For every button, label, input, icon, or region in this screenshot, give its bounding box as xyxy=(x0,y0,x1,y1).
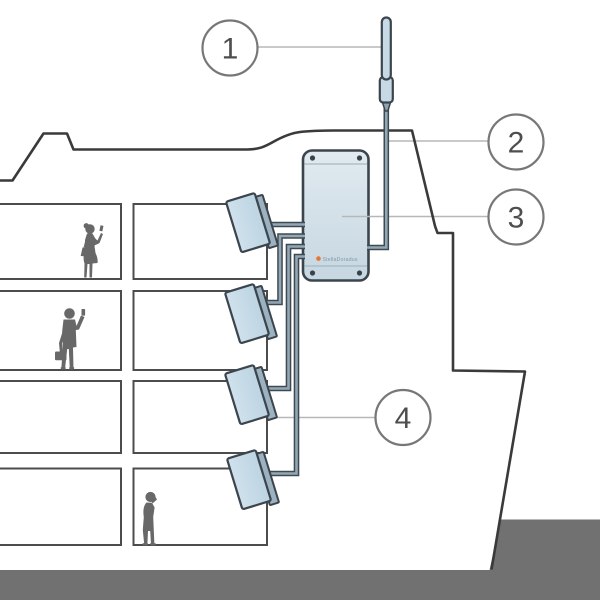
brand-logo-icon xyxy=(316,256,321,261)
outdoor-antenna xyxy=(380,18,393,112)
cabin-deck4-left xyxy=(0,469,121,546)
diagram-canvas: StellaDoradus xyxy=(0,0,600,600)
callout-4-number: 4 xyxy=(395,402,412,435)
callout-2-number: 2 xyxy=(508,127,525,160)
callout-2: 2 xyxy=(489,115,544,170)
callout-1: 1 xyxy=(203,21,258,76)
cable-panel4-outer xyxy=(265,257,305,474)
brand-logo: StellaDoradus xyxy=(316,256,358,262)
brand-logo-text: StellaDoradus xyxy=(323,257,358,263)
cable-antenna-feed-outer xyxy=(367,106,386,248)
callout-3-number: 3 xyxy=(508,202,525,235)
callout-4: 4 xyxy=(376,390,431,445)
cabin-deck3-left xyxy=(0,381,121,453)
cable-antenna-feed-core xyxy=(367,106,386,248)
antenna-barrel xyxy=(380,77,393,103)
callout-1-number: 1 xyxy=(222,33,239,66)
antenna-whip xyxy=(382,18,391,80)
repeater-unit: StellaDoradus xyxy=(303,151,369,281)
cabin-deck1-left xyxy=(0,204,121,279)
ship-signal-repeater-diagram: StellaDoradus xyxy=(0,0,600,600)
callout-3: 3 xyxy=(489,190,544,245)
